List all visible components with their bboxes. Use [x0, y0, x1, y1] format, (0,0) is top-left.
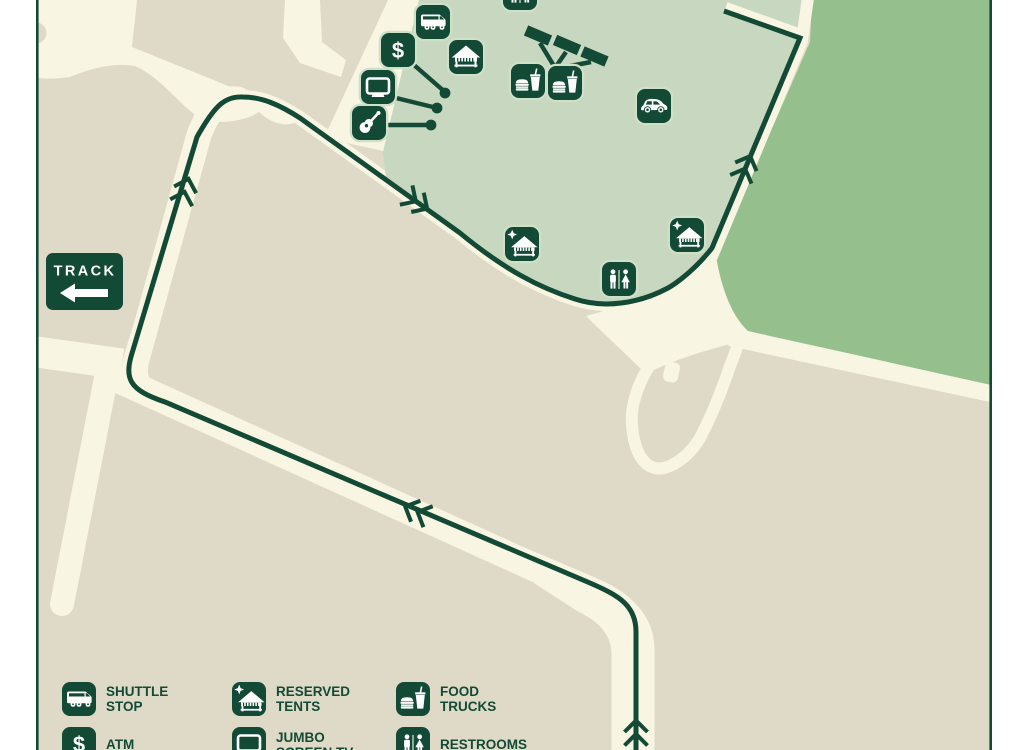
svg-text:TRUCKS: TRUCKS	[440, 699, 496, 714]
svg-text:SHUTTLE: SHUTTLE	[106, 684, 168, 699]
svg-text:TENTS: TENTS	[276, 699, 320, 714]
svg-text:FOOD: FOOD	[440, 684, 479, 699]
svg-text:STOP: STOP	[106, 699, 143, 714]
svg-text:RESTROOMS: RESTROOMS	[440, 737, 527, 750]
svg-text:TRACK: TRACK	[54, 264, 117, 280]
svg-text:JUMBO: JUMBO	[276, 730, 325, 745]
svg-text:RESERVED: RESERVED	[276, 684, 350, 699]
svg-text:ATM: ATM	[106, 737, 134, 750]
svg-text:SCREEN TV: SCREEN TV	[276, 745, 353, 750]
